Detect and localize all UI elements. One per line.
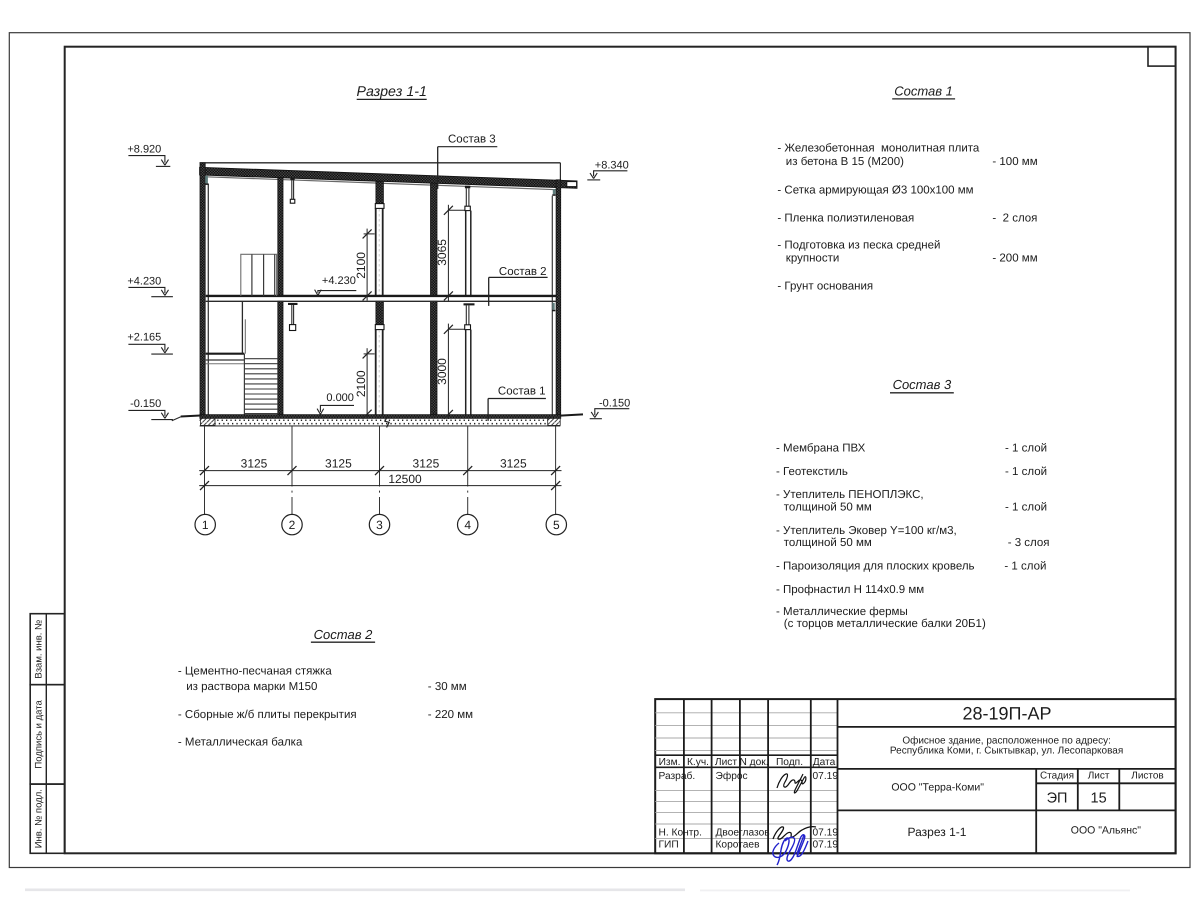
svg-text:из бетона В 15 (М200): из бетона В 15 (М200) [786,156,904,168]
svg-text:3000: 3000 [435,358,449,385]
svg-text:ООО "Альянс": ООО "Альянс" [1071,825,1141,837]
svg-text:- Утеплитель ПЕНОПЛЭКС,: - Утеплитель ПЕНОПЛЭКС, [776,489,924,501]
svg-text:-0.150: -0.150 [130,398,161,410]
svg-text:Лист: Лист [1088,771,1110,782]
svg-text:Состав 1: Состав 1 [498,386,546,398]
svg-text:толщиной 50 мм: толщиной 50 мм [784,537,872,549]
svg-text:Дата: Дата [813,757,836,768]
svg-text:- Металлическая балка: - Металлическая балка [178,737,303,749]
svg-text:Состав 3: Состав 3 [893,377,952,392]
svg-text:- Геотекстиль: - Геотекстиль [776,466,848,478]
svg-text:-0.150: -0.150 [599,398,630,410]
svg-text:- Грунт основания: - Грунт основания [777,281,873,293]
svg-text:- Профнастил Н 114х0.9 мм: - Профнастил Н 114х0.9 мм [776,584,924,596]
svg-text:+4.230: +4.230 [322,275,356,287]
svg-text:- Сборные ж/б плиты перекрытия: - Сборные ж/б плиты перекрытия [178,709,357,721]
svg-text:4: 4 [464,518,471,532]
svg-text:3125: 3125 [500,456,527,470]
svg-text:- Железобетонная монолитная п: - Железобетонная монолитная плита [777,143,979,155]
svg-text:ЭП: ЭП [1047,790,1068,806]
svg-text:Стадия: Стадия [1040,771,1074,782]
svg-text:Изм.: Изм. [659,757,681,768]
svg-text:Листов: Листов [1131,771,1164,782]
svg-text:- 1 слой: - 1 слой [1004,561,1046,573]
svg-text:5: 5 [553,518,560,532]
svg-text:2100: 2100 [354,252,368,279]
svg-text:- 30 мм: - 30 мм [428,681,467,693]
svg-text:07.19: 07.19 [813,840,839,851]
svg-text:- Пароизоляция для плоских кро: - Пароизоляция для плоских кровель [776,561,975,573]
svg-text:+2.165: +2.165 [127,332,161,344]
svg-text:28-19П-АР: 28-19П-АР [963,703,1052,723]
svg-text:- Металлические фермы: - Металлические фермы [776,606,908,618]
svg-text:Состав 2: Состав 2 [499,266,547,278]
svg-text:- 2 слоя: - 2 слоя [992,212,1037,224]
svg-text:ООО "Терра-Коми": ООО "Терра-Коми" [891,782,984,794]
svg-text:Состав 1: Состав 1 [894,84,953,99]
svg-text:- 1 слой: - 1 слой [1005,442,1047,454]
svg-text:Взам. инв. №: Взам. инв. № [33,620,44,679]
svg-text:1: 1 [202,518,209,532]
svg-text:Лист: Лист [715,757,737,768]
svg-text:Состав 2: Состав 2 [314,627,373,642]
svg-text:Республика Коми, г. Сыктывкар,: Республика Коми, г. Сыктывкар, ул. Лесоп… [890,746,1123,757]
svg-text:К.уч.: К.уч. [687,757,709,768]
svg-text:Н. Контр.: Н. Контр. [659,827,702,838]
svg-text:ГИП: ГИП [659,840,679,851]
svg-text:0.000: 0.000 [326,392,354,404]
svg-text:Эфрос: Эфрос [716,771,748,782]
svg-text:3125: 3125 [325,456,352,470]
svg-text:Инв. № подл.: Инв. № подл. [33,789,44,848]
svg-text:Подпись и дата: Подпись и дата [33,700,44,769]
svg-text:- Мембрана ПВХ: - Мембрана ПВХ [776,442,866,454]
svg-text:07.19: 07.19 [813,827,839,838]
svg-text:07.19: 07.19 [813,771,839,782]
svg-text:+8.920: +8.920 [127,143,161,155]
svg-text:Разрез 1-1: Разрез 1-1 [357,84,427,100]
svg-text:3065: 3065 [435,239,449,266]
svg-text:2100: 2100 [354,370,368,397]
svg-text:из раствора марки М150: из раствора марки М150 [186,681,317,693]
svg-text:3125: 3125 [413,456,440,470]
svg-text:- Подготовка из песка средней: - Подготовка из песка средней [777,239,940,251]
svg-text:Разрез 1-1: Разрез 1-1 [908,825,967,839]
svg-text:3125: 3125 [241,456,268,470]
svg-text:Разраб.: Разраб. [659,771,696,782]
svg-text:Двоеглазов: Двоеглазов [716,827,770,838]
svg-text:- 200 мм: - 200 мм [992,253,1037,265]
svg-text:+4.230: +4.230 [127,275,161,287]
svg-text:(с торцов металлические балки: (с торцов металлические балки 20Б1) [784,618,986,630]
svg-text:12500: 12500 [388,472,422,486]
svg-text:- 1 слой: - 1 слой [1005,501,1047,513]
svg-text:15: 15 [1091,790,1107,806]
svg-text:2: 2 [289,518,296,532]
svg-text:3: 3 [376,518,383,532]
svg-text:толщиной 50 мм: толщиной 50 мм [784,501,872,513]
svg-text:- Сетка армирующая Ø3 100х100: - Сетка армирующая Ø3 100х100 мм [777,184,973,196]
svg-text:- Цементно-песчаная стяжка: - Цементно-песчаная стяжка [178,666,332,678]
svg-text:Подп.: Подп. [776,757,803,768]
svg-text:- 3 слоя: - 3 слоя [1008,537,1050,549]
svg-text:крупности: крупности [786,253,839,265]
svg-text:Состав 3: Состав 3 [448,133,496,145]
svg-text:- 1 слой: - 1 слой [1005,466,1047,478]
svg-text:- 220 мм: - 220 мм [428,709,473,721]
svg-text:+8.340: +8.340 [595,160,629,172]
svg-text:- Утеплитель Эковер Y=100 кг/м: - Утеплитель Эковер Y=100 кг/м3, [776,525,957,537]
svg-text:Коротаев: Коротаев [716,840,760,851]
svg-text:N док.: N док. [739,757,768,768]
svg-text:- 100 мм: - 100 мм [992,156,1037,168]
svg-text:- Пленка полиэтиленовая: - Пленка полиэтиленовая [777,212,914,224]
